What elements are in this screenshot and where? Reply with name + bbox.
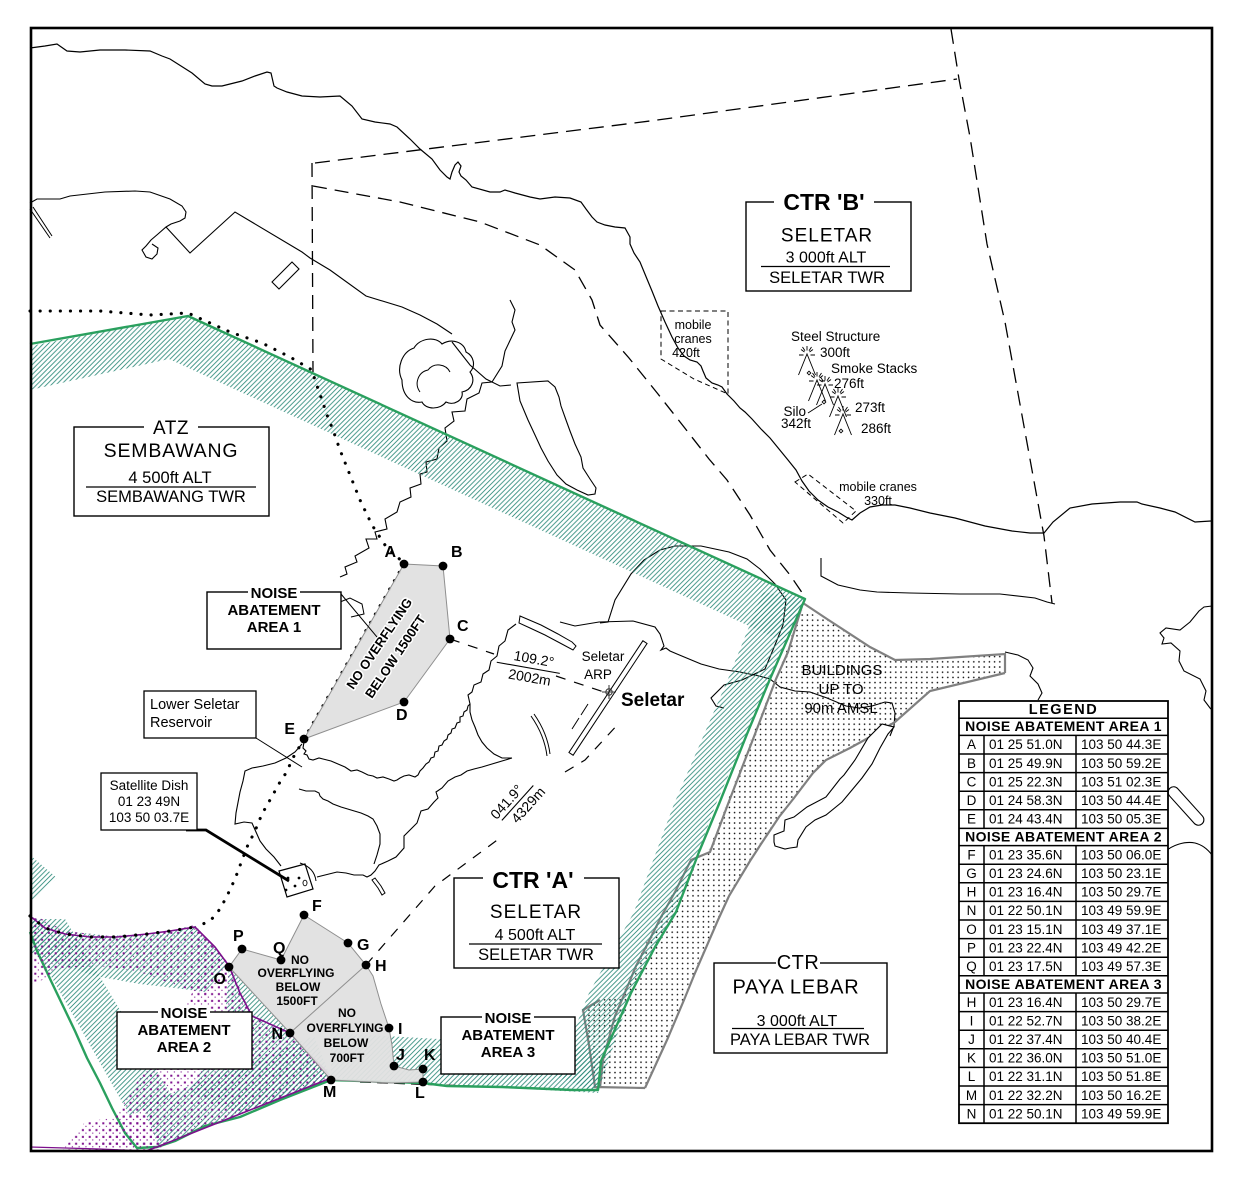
svg-text:4 500ft ALT: 4 500ft ALT xyxy=(495,927,576,944)
svg-text:E: E xyxy=(284,721,295,738)
svg-text:01 22 36.0N: 01 22 36.0N xyxy=(989,1051,1063,1066)
svg-text:G: G xyxy=(966,866,977,881)
svg-text:O: O xyxy=(966,922,977,937)
svg-text:ABATEMENT: ABATEMENT xyxy=(137,1022,230,1039)
svg-text:01 22 52.7N: 01 22 52.7N xyxy=(989,1013,1063,1028)
svg-text:01 23 17.5N: 01 23 17.5N xyxy=(989,959,1063,974)
svg-text:01 25 51.0N: 01 25 51.0N xyxy=(989,737,1063,752)
svg-text:01 23 24.6N: 01 23 24.6N xyxy=(989,866,1063,881)
svg-text:AREA 1: AREA 1 xyxy=(247,619,301,636)
svg-text:NOISE ABATEMENT AREA 3: NOISE ABATEMENT AREA 3 xyxy=(965,976,1162,992)
svg-text:mobile cranes: mobile cranes xyxy=(839,480,917,494)
svg-text:ABATEMENT: ABATEMENT xyxy=(461,1027,554,1044)
svg-text:103 50 40.4E: 103 50 40.4E xyxy=(1081,1032,1161,1047)
svg-text:SELETAR: SELETAR xyxy=(781,226,873,247)
svg-text:CTR: CTR xyxy=(777,952,820,974)
svg-text:103 49 42.2E: 103 49 42.2E xyxy=(1081,940,1161,955)
svg-text:O: O xyxy=(214,971,226,988)
svg-text:H: H xyxy=(375,958,387,975)
svg-text:I: I xyxy=(970,1013,974,1028)
svg-text:01 23 35.6N: 01 23 35.6N xyxy=(989,847,1063,862)
svg-text:SELETAR TWR: SELETAR TWR xyxy=(478,946,594,964)
svg-text:NOISE: NOISE xyxy=(161,1005,208,1022)
svg-text:103 50 23.1E: 103 50 23.1E xyxy=(1081,866,1161,881)
svg-text:1500FT: 1500FT xyxy=(276,994,318,1008)
svg-text:01 25 22.3N: 01 25 22.3N xyxy=(989,774,1063,789)
svg-text:PAYA LEBAR: PAYA LEBAR xyxy=(733,977,860,999)
svg-text:SELETAR: SELETAR xyxy=(490,902,582,923)
svg-text:NOISE ABATEMENT AREA 2: NOISE ABATEMENT AREA 2 xyxy=(965,828,1162,844)
svg-text:PAYA LEBAR TWR: PAYA LEBAR TWR xyxy=(730,1031,870,1049)
svg-text:3 000ft ALT: 3 000ft ALT xyxy=(757,1013,838,1030)
svg-text:01 23 49N: 01 23 49N xyxy=(118,794,180,809)
svg-text:300ft: 300ft xyxy=(820,345,850,360)
svg-text:103 51 02.3E: 103 51 02.3E xyxy=(1081,774,1161,789)
svg-text:Steel Structure: Steel Structure xyxy=(791,329,880,344)
svg-text:01 25 49.9N: 01 25 49.9N xyxy=(989,756,1063,771)
svg-text:01 22 50.1N: 01 22 50.1N xyxy=(989,903,1063,918)
svg-text:M: M xyxy=(966,1088,977,1103)
svg-text:NO: NO xyxy=(291,953,309,967)
svg-text:SEMBAWANG: SEMBAWANG xyxy=(104,440,239,462)
svg-text:103 49 57.3E: 103 49 57.3E xyxy=(1081,959,1161,974)
svg-text:cranes: cranes xyxy=(674,332,712,346)
svg-text:OVERFLYING: OVERFLYING xyxy=(258,966,335,980)
svg-text:H: H xyxy=(967,885,977,900)
svg-text:L: L xyxy=(415,1085,425,1102)
svg-text:103 50 59.2E: 103 50 59.2E xyxy=(1081,756,1161,771)
svg-text:ARP: ARP xyxy=(584,667,612,682)
svg-text:N: N xyxy=(967,1106,977,1121)
svg-text:01 23 16.4N: 01 23 16.4N xyxy=(989,995,1063,1010)
svg-text:F: F xyxy=(967,847,975,862)
svg-text:103 50 44.4E: 103 50 44.4E xyxy=(1081,793,1161,808)
svg-text:BUILDINGS: BUILDINGS xyxy=(802,662,883,679)
svg-text:01 22 32.2N: 01 22 32.2N xyxy=(989,1088,1063,1103)
svg-text:C: C xyxy=(967,774,977,789)
svg-text:103 50 51.0E: 103 50 51.0E xyxy=(1081,1051,1161,1066)
svg-text:01 23 16.4N: 01 23 16.4N xyxy=(989,885,1063,900)
svg-text:Q: Q xyxy=(273,940,285,957)
svg-text:N: N xyxy=(967,903,977,918)
svg-text:A: A xyxy=(384,544,396,561)
svg-text:103 50 51.8E: 103 50 51.8E xyxy=(1081,1069,1161,1084)
svg-text:SEMBAWANG TWR: SEMBAWANG TWR xyxy=(96,488,246,506)
svg-text:276ft: 276ft xyxy=(834,376,864,391)
svg-text:Lower Seletar: Lower Seletar xyxy=(150,697,240,713)
svg-text:B: B xyxy=(451,544,463,561)
svg-text:01 23 15.1N: 01 23 15.1N xyxy=(989,922,1063,937)
svg-text:Seletar: Seletar xyxy=(582,649,625,664)
svg-text:103 50 03.7E: 103 50 03.7E xyxy=(109,810,189,825)
svg-text:M: M xyxy=(323,1084,336,1101)
svg-text:ATZ: ATZ xyxy=(153,418,189,439)
svg-text:SELETAR TWR: SELETAR TWR xyxy=(769,269,885,287)
svg-text:LEGEND: LEGEND xyxy=(1029,702,1098,718)
svg-text:103 50 44.3E: 103 50 44.3E xyxy=(1081,737,1161,752)
svg-text:H: H xyxy=(967,995,977,1010)
svg-text:NOISE ABATEMENT AREA 1: NOISE ABATEMENT AREA 1 xyxy=(965,718,1162,734)
svg-text:C: C xyxy=(457,618,469,635)
svg-text:G: G xyxy=(357,937,369,954)
svg-text:103 50 06.0E: 103 50 06.0E xyxy=(1081,847,1161,862)
svg-text:Seletar: Seletar xyxy=(621,690,685,711)
svg-text:01 23 22.4N: 01 23 22.4N xyxy=(989,940,1063,955)
svg-text:Smoke Stacks: Smoke Stacks xyxy=(831,361,918,376)
svg-text:F: F xyxy=(312,898,322,915)
svg-text:J: J xyxy=(396,1047,405,1064)
svg-text:01 22 37.4N: 01 22 37.4N xyxy=(989,1032,1063,1047)
svg-text:L: L xyxy=(968,1069,976,1084)
svg-text:103 50 16.2E: 103 50 16.2E xyxy=(1081,1088,1161,1103)
svg-text:286ft: 286ft xyxy=(861,421,891,436)
svg-text:420ft: 420ft xyxy=(672,346,700,360)
svg-text:90m AMSL: 90m AMSL xyxy=(804,700,877,717)
svg-text:mobile: mobile xyxy=(675,318,712,332)
svg-text:I: I xyxy=(398,1021,402,1038)
svg-text:103 49 59.9E: 103 49 59.9E xyxy=(1081,1106,1161,1121)
svg-text:J: J xyxy=(968,1032,975,1047)
svg-text:B: B xyxy=(967,756,976,771)
svg-text:103 50 05.3E: 103 50 05.3E xyxy=(1081,812,1161,827)
svg-text:P: P xyxy=(233,928,244,945)
svg-text:D: D xyxy=(967,793,977,808)
svg-text:BELOW: BELOW xyxy=(324,1036,369,1050)
svg-text:OVERFLYING: OVERFLYING xyxy=(307,1021,384,1035)
svg-text:BELOW: BELOW xyxy=(276,980,321,994)
svg-text:103 50 29.7E: 103 50 29.7E xyxy=(1081,995,1161,1010)
svg-text:01 22 50.1N: 01 22 50.1N xyxy=(989,1106,1063,1121)
svg-text:Satellite Dish: Satellite Dish xyxy=(110,778,189,793)
svg-text:01 24 58.3N: 01 24 58.3N xyxy=(989,793,1063,808)
svg-text:K: K xyxy=(967,1051,976,1066)
svg-text:NOISE: NOISE xyxy=(485,1010,532,1027)
svg-text:CTR 'A': CTR 'A' xyxy=(492,867,573,893)
svg-text:342ft: 342ft xyxy=(781,416,811,431)
svg-text:273ft: 273ft xyxy=(855,400,885,415)
svg-text:D: D xyxy=(396,707,408,724)
svg-text:E: E xyxy=(967,812,976,827)
svg-text:NOISE: NOISE xyxy=(251,585,298,602)
svg-text:01 22 31.1N: 01 22 31.1N xyxy=(989,1069,1063,1084)
svg-text:A: A xyxy=(967,737,976,752)
svg-text:103 49 37.1E: 103 49 37.1E xyxy=(1081,922,1161,937)
svg-text:ABATEMENT: ABATEMENT xyxy=(227,602,320,619)
svg-text:330ft: 330ft xyxy=(864,494,892,508)
svg-text:4 500ft ALT: 4 500ft ALT xyxy=(128,469,211,487)
svg-text:3 000ft ALT: 3 000ft ALT xyxy=(786,250,867,267)
svg-text:P: P xyxy=(967,940,976,955)
svg-text:103 50 29.7E: 103 50 29.7E xyxy=(1081,885,1161,900)
svg-text:AREA 3: AREA 3 xyxy=(481,1044,535,1061)
svg-text:UP TO: UP TO xyxy=(818,681,863,698)
svg-text:CTR 'B': CTR 'B' xyxy=(783,189,864,215)
svg-text:103 49 59.9E: 103 49 59.9E xyxy=(1081,903,1161,918)
svg-text:01 24 43.4N: 01 24 43.4N xyxy=(989,812,1063,827)
svg-text:700FT: 700FT xyxy=(330,1051,365,1065)
svg-text:N: N xyxy=(271,1026,283,1043)
svg-text:Q: Q xyxy=(966,959,977,974)
svg-text:AREA 2: AREA 2 xyxy=(157,1039,211,1056)
svg-text:NO: NO xyxy=(338,1006,356,1020)
svg-text:K: K xyxy=(424,1047,436,1064)
svg-text:Reservoir: Reservoir xyxy=(150,715,212,731)
svg-text:103 50 38.2E: 103 50 38.2E xyxy=(1081,1013,1161,1028)
